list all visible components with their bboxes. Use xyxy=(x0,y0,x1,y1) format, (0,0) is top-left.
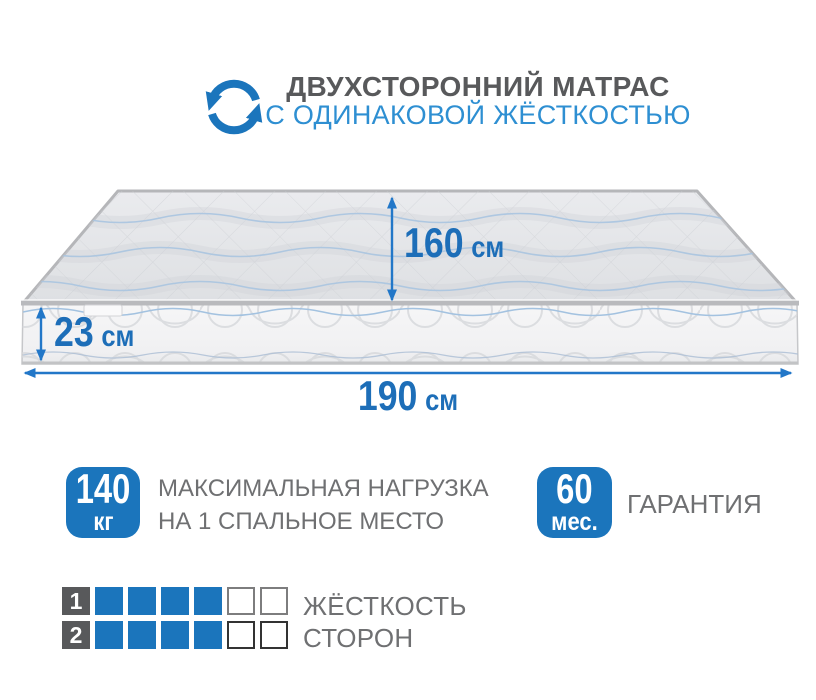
max-load-label-line1: МАКСИМАЛЬНАЯ НАГРУЗКА xyxy=(158,472,489,505)
firmness-cell-filled xyxy=(128,587,156,615)
max-load-label-line2: НА 1 СПАЛЬНОЕ МЕСТО xyxy=(158,505,489,538)
firmness-cell-empty xyxy=(227,621,255,649)
dimension-unit: см xyxy=(101,320,134,353)
max-load-label: МАКСИМАЛЬНАЯ НАГРУЗКА НА 1 СПАЛЬНОЕ МЕСТ… xyxy=(158,472,489,538)
firmness-label-line2: СТОРОН xyxy=(303,622,467,654)
dimension-label-width: 190см xyxy=(0,374,816,428)
dimension-value: 160 xyxy=(404,219,464,266)
firmness-cell-empty xyxy=(260,587,288,615)
firmness-label-line1: ЖЁСТКОСТЬ xyxy=(303,590,467,622)
firmness-cell-filled xyxy=(194,587,222,615)
dimension-value: 190 xyxy=(358,372,418,419)
warranty-badge: 60 мес. xyxy=(537,467,612,538)
firmness-cell-empty xyxy=(260,621,288,649)
firmness-label: ЖЁСТКОСТЬ СТОРОН xyxy=(303,590,467,654)
dimension-unit: см xyxy=(425,384,458,417)
warranty-unit: мес. xyxy=(551,509,598,535)
firmness-row-number: 2 xyxy=(62,621,90,649)
dimension-value: 23 xyxy=(54,308,94,355)
dimension-label-top: 160см xyxy=(404,221,522,275)
firmness-cell-empty xyxy=(227,587,255,615)
warranty-label: ГАРАНТИЯ xyxy=(627,489,762,520)
firmness-cell-filled xyxy=(194,621,222,649)
max-load-unit: кг xyxy=(93,509,113,535)
header-title: ДВУХСТОРОННИЙ МАТРАС xyxy=(140,71,816,103)
max-load-value: 140 xyxy=(76,470,131,509)
firmness-row-2: 2 xyxy=(62,621,288,649)
mattress-infographic: ДВУХСТОРОННИЙ МАТРАС С ОДИНАКОВОЙ ЖЁСТКО… xyxy=(0,0,816,700)
firmness-row-number: 1 xyxy=(62,587,90,615)
firmness-cell-filled xyxy=(161,621,189,649)
warranty-value: 60 xyxy=(556,470,592,509)
max-load-badge: 140 кг xyxy=(66,467,140,538)
firmness-cell-filled xyxy=(128,621,156,649)
dimension-label-height: 23см xyxy=(54,310,149,364)
firmness-cell-filled xyxy=(95,621,123,649)
firmness-cell-filled xyxy=(95,587,123,615)
header-subtitle: С ОДИНАКОВОЙ ЖЁСТКОСТЬЮ xyxy=(140,100,816,131)
dimension-unit: см xyxy=(471,231,504,264)
firmness-cell-filled xyxy=(161,587,189,615)
firmness-row-1: 1 xyxy=(62,587,288,615)
firmness-rows: 12 xyxy=(62,587,288,655)
